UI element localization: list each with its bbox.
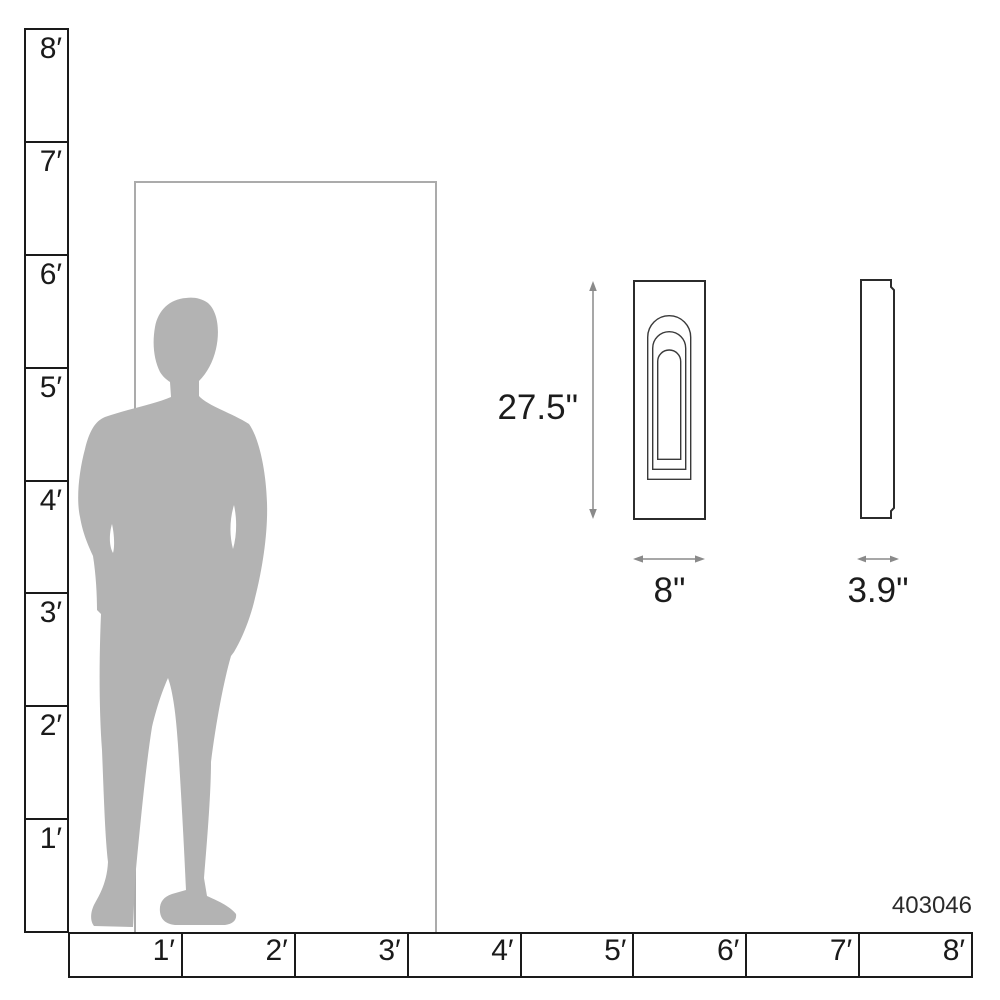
- horizontal-ruler-tick-3ft: 3′: [296, 934, 409, 976]
- vertical-ruler-tick-7ft: 7′: [26, 141, 67, 254]
- horizontal-ruler-tick-6ft: 6′: [634, 934, 747, 976]
- product-front-arch-middle: [653, 332, 686, 470]
- product-front-arch-inner: [658, 350, 681, 459]
- vertical-ruler-tick-6ft: 6′: [26, 254, 67, 367]
- height-dimension-arrow: [589, 281, 597, 519]
- product-sku: 403046: [840, 894, 972, 918]
- horizontal-ruler-tick-4ft: 4′: [409, 934, 522, 976]
- horizontal-ruler-tick-8ft: 8′: [860, 934, 971, 976]
- horizontal-ruler-tick-5ft: 5′: [522, 934, 635, 976]
- vertical-ruler-tick-1ft: 1′: [26, 818, 67, 931]
- product-front-body: [634, 281, 705, 519]
- horizontal-ruler-tick-7ft: 7′: [747, 934, 860, 976]
- vertical-ruler-tick-4ft: 4′: [26, 480, 67, 593]
- vertical-ruler-tick-3ft: 3′: [26, 592, 67, 705]
- depth-dimension-label: 3.9": [818, 573, 938, 608]
- horizontal-ruler-tick-2ft: 2′: [183, 934, 296, 976]
- vertical-ruler-tick-2ft: 2′: [26, 705, 67, 818]
- vertical-ruler: 8′ 7′ 6′ 5′ 4′ 3′ 2′ 1′: [24, 28, 69, 933]
- horizontal-ruler-tick-1ft: 1′: [70, 934, 183, 976]
- product-side-body: [861, 280, 894, 518]
- depth-dimension-arrow: [857, 556, 899, 563]
- product-drawings: [460, 260, 980, 620]
- door-outline: [134, 181, 437, 932]
- product-front-view: [634, 281, 705, 519]
- person-pocket-crease-left: [110, 524, 114, 553]
- width-dimension-arrow: [633, 555, 705, 562]
- product-side-view: [861, 280, 894, 518]
- product-scale-diagram: 8′ 7′ 6′ 5′ 4′ 3′ 2′ 1′: [0, 0, 1000, 1000]
- horizontal-ruler: 1′ 2′ 3′ 4′ 5′ 6′ 7′ 8′: [68, 932, 973, 978]
- height-dimension-label: 27.5": [462, 390, 578, 425]
- product-front-arch-outer: [648, 316, 691, 480]
- vertical-ruler-tick-5ft: 5′: [26, 367, 67, 480]
- vertical-ruler-tick-8ft: 8′: [26, 28, 67, 141]
- width-dimension-label: 8": [634, 573, 705, 608]
